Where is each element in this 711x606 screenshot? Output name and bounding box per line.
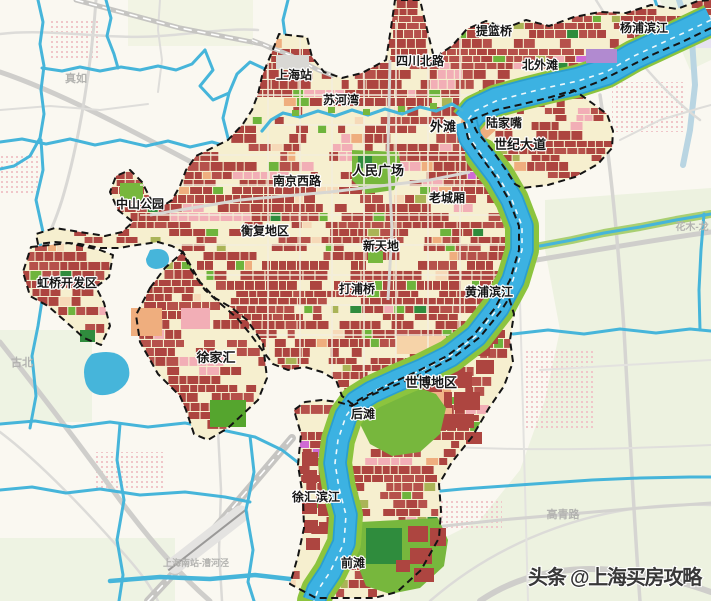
svg-text:高青路: 高青路 [547,507,581,521]
svg-text:徐家汇: 徐家汇 [195,350,235,365]
svg-text:世博地区: 世博地区 [405,375,457,390]
svg-text:古北: 古北 [11,355,33,369]
svg-text:老城厢: 老城厢 [429,190,465,205]
svg-text:黄浦滨江: 黄浦滨江 [465,284,513,299]
svg-text:陆家嘴: 陆家嘴 [486,115,522,130]
svg-text:徐汇滨江: 徐汇滨江 [291,489,340,504]
svg-text:打浦桥: 打浦桥 [339,281,376,296]
svg-text:衡复地区: 衡复地区 [241,223,289,238]
svg-text:头条 @上海买房攻略: 头条 @上海买房攻略 [528,565,703,589]
svg-text:前滩: 前滩 [341,555,365,570]
svg-text:南京西路: 南京西路 [273,173,322,188]
svg-text:上海站: 上海站 [276,67,312,82]
svg-text:苏河湾: 苏河湾 [323,92,359,107]
svg-text:北外滩: 北外滩 [522,57,558,72]
svg-text:外滩: 外滩 [429,119,456,134]
svg-text:人民广场: 人民广场 [352,163,404,178]
svg-text:杨浦滨江: 杨浦滨江 [620,20,668,35]
svg-text:真如: 真如 [65,71,87,85]
svg-text:世纪大道: 世纪大道 [494,137,546,152]
svg-text:后滩: 后滩 [351,406,375,421]
svg-text:提篮桥: 提篮桥 [476,23,513,38]
svg-text:中山公园: 中山公园 [116,196,164,211]
svg-text:上海南站-漕河泾: 上海南站-漕河泾 [163,557,229,568]
svg-text:花木-龙: 花木-龙 [675,220,708,233]
svg-text:虹桥开发区: 虹桥开发区 [37,275,97,290]
svg-text:四川北路: 四川北路 [396,53,445,68]
svg-text:新天地: 新天地 [363,238,399,253]
